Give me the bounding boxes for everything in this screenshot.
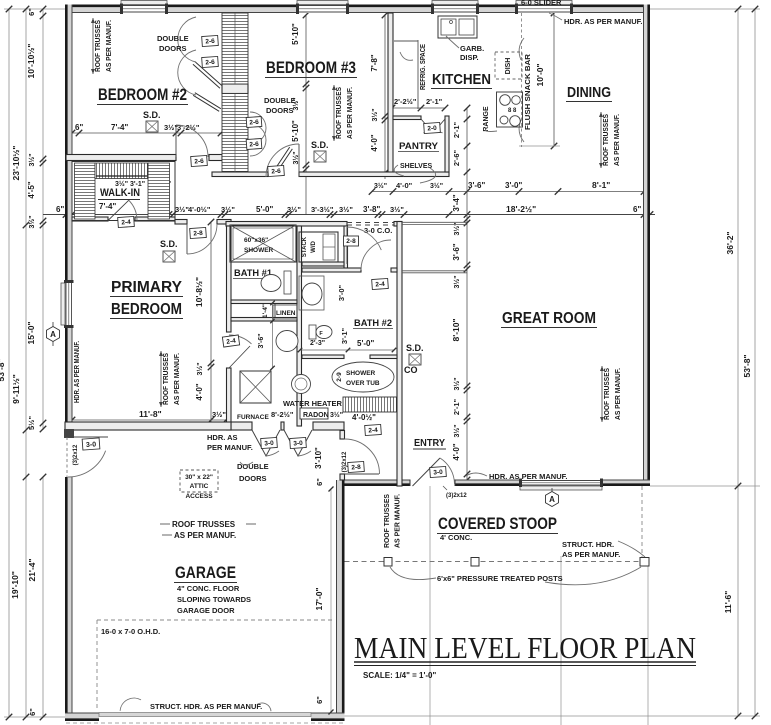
svg-text:W/D: W/D [311, 241, 317, 253]
svg-text:2-8: 2-8 [351, 464, 361, 472]
svg-text:5'-0": 5'-0" [256, 205, 273, 214]
svg-text:3½": 3½" [28, 153, 36, 166]
svg-text:3-0: 3-0 [264, 440, 274, 448]
svg-text:AS PER MANUF.: AS PER MANUF. [345, 87, 354, 139]
svg-text:SLOPING TOWARDS: SLOPING TOWARDS [177, 595, 251, 604]
svg-text:SHELVES: SHELVES [400, 163, 432, 170]
svg-text:AS PER MANUF.: AS PER MANUF. [612, 114, 621, 166]
svg-text:2'-6": 2'-6" [452, 149, 461, 166]
svg-text:6": 6" [28, 708, 37, 716]
svg-text:2-6: 2-6 [271, 168, 281, 176]
svg-text:GARAGE DOOR: GARAGE DOOR [177, 606, 235, 615]
svg-text:21'-4": 21'-4" [27, 558, 37, 581]
svg-text:AS PER MANUF.: AS PER MANUF. [104, 20, 113, 72]
svg-text:RADON: RADON [303, 412, 329, 419]
svg-text:3'-1": 3'-1" [340, 327, 349, 344]
svg-text:ROOF TRUSSES: ROOF TRUSSES [602, 368, 611, 420]
svg-text:AS PER MANUF.: AS PER MANUF. [613, 368, 622, 420]
svg-text:DISH: DISH [505, 58, 512, 75]
svg-text:AS PER MANUF.: AS PER MANUF. [172, 353, 181, 405]
svg-text:ACCESS: ACCESS [185, 493, 213, 500]
svg-text:2-6: 2-6 [205, 59, 215, 67]
svg-text:3½": 3½" [453, 275, 461, 288]
svg-text:11'-6": 11'-6" [723, 591, 733, 614]
svg-text:5'-10": 5'-10" [291, 23, 300, 45]
svg-text:11'-8": 11'-8" [139, 409, 162, 419]
svg-text:15'-0": 15'-0" [26, 321, 36, 344]
svg-text:19'-10": 19'-10" [10, 571, 20, 599]
svg-text:10'-10½": 10'-10½" [26, 44, 36, 79]
svg-text:GARB.: GARB. [460, 44, 484, 53]
svg-text:36'-2": 36'-2" [725, 231, 735, 254]
svg-text:6": 6" [27, 8, 36, 16]
svg-text:4' CONC.: 4' CONC. [440, 533, 472, 542]
svg-text:ROOF TRUSSES: ROOF TRUSSES [382, 494, 391, 548]
svg-text:2-6: 2-6 [194, 158, 204, 166]
svg-text:18'-2½": 18'-2½" [506, 204, 536, 214]
svg-text:2-6: 2-6 [249, 119, 259, 127]
svg-text:3½": 3½" [221, 205, 235, 214]
svg-text:ROOF TRUSSES: ROOF TRUSSES [334, 87, 343, 139]
svg-text:4'-0½": 4'-0½" [188, 205, 211, 214]
svg-text:WATER HEATER: WATER HEATER [283, 399, 342, 408]
svg-text:2-8: 2-8 [346, 238, 356, 245]
svg-text:STRUCT. HDR.: STRUCT. HDR. [562, 540, 614, 549]
svg-text:7'-8": 7'-8" [370, 54, 379, 71]
svg-text:ATTIC: ATTIC [190, 483, 209, 490]
svg-text:S.D.: S.D. [311, 140, 329, 150]
svg-text:BEDROOM: BEDROOM [111, 301, 182, 318]
svg-text:OVER TUB: OVER TUB [346, 380, 380, 387]
svg-text:HDR. AS PER MANUF.: HDR. AS PER MANUF. [74, 341, 81, 403]
svg-text:KITCHEN: KITCHEN [432, 71, 491, 88]
svg-text:2'-3": 2'-3" [310, 340, 325, 347]
svg-text:3'-6": 3'-6" [258, 333, 265, 348]
svg-text:3½": 3½" [453, 377, 461, 390]
svg-text:6-0 SLIDER: 6-0 SLIDER [521, 0, 562, 7]
svg-text:8'-10": 8'-10" [451, 318, 461, 341]
svg-text:DISP.: DISP. [460, 53, 479, 62]
svg-text:PRIMARY: PRIMARY [111, 279, 182, 296]
svg-text:3'-8": 3'-8" [363, 205, 380, 214]
svg-text:MAIN LEVEL FLOOR PLAN: MAIN LEVEL FLOOR PLAN [354, 630, 696, 665]
svg-text:6'x6" PRESSURE TREATED POSTS: 6'x6" PRESSURE TREATED POSTS [437, 574, 563, 583]
svg-text:3-0: 3-0 [86, 441, 97, 449]
svg-text:4'-0": 4'-0" [370, 134, 379, 151]
svg-text:3½": 3½" [212, 410, 226, 419]
svg-text:STRUCT. HDR. AS PER MANUF.: STRUCT. HDR. AS PER MANUF. [150, 702, 262, 711]
svg-text:(3)2x12: (3)2x12 [446, 493, 467, 499]
svg-text:ROOF TRUSSES: ROOF TRUSSES [93, 20, 102, 72]
svg-text:FURNACE: FURNACE [237, 414, 269, 421]
svg-text:SHOWER: SHOWER [244, 247, 274, 254]
svg-text:DOORS: DOORS [159, 44, 187, 53]
svg-text:60"x36": 60"x36" [244, 237, 268, 244]
svg-text:3'-0": 3'-0" [337, 284, 346, 301]
svg-text:3½": 3½" [287, 205, 301, 214]
svg-text:PER MANUF.: PER MANUF. [207, 443, 253, 452]
svg-text:DOORS: DOORS [266, 106, 294, 115]
svg-text:17'-0": 17'-0" [314, 587, 324, 610]
svg-text:WALK-IN: WALK-IN [100, 187, 140, 199]
svg-text:2-8: 2-8 [193, 230, 203, 238]
svg-text:2-0: 2-0 [427, 125, 437, 133]
svg-text:6": 6" [315, 478, 324, 486]
svg-text:2-4: 2-4 [368, 427, 378, 435]
svg-text:30" x 22": 30" x 22" [185, 474, 213, 481]
svg-text:4'-5": 4'-5" [27, 181, 36, 198]
svg-text:COVERED STOOP: COVERED STOOP [438, 515, 557, 533]
svg-text:4'-0": 4'-0" [452, 443, 461, 460]
svg-text:A: A [549, 495, 555, 504]
svg-text:3½": 3½" [28, 215, 36, 228]
svg-text:DINING: DINING [567, 84, 611, 101]
svg-text:A: A [50, 330, 56, 339]
svg-text:3-0: 3-0 [293, 440, 303, 448]
svg-text:3½": 3½" [196, 362, 204, 375]
svg-text:2-4: 2-4 [121, 219, 131, 227]
svg-text:4'-0": 4'-0" [195, 383, 204, 400]
svg-text:3'-4": 3'-4" [452, 194, 461, 211]
svg-text:6": 6" [75, 123, 83, 132]
svg-text:S.D.: S.D. [160, 239, 178, 249]
svg-text:ROOF TRUSSES: ROOF TRUSSES [172, 520, 236, 529]
svg-text:3'-6": 3'-6" [452, 243, 461, 260]
svg-text:S.D.: S.D. [143, 110, 161, 120]
svg-text:ROOF TRUSSES: ROOF TRUSSES [161, 353, 170, 405]
svg-text:GREAT ROOM: GREAT ROOM [502, 310, 596, 327]
svg-text:3'-10": 3'-10" [314, 447, 323, 469]
svg-text:4'-0": 4'-0" [396, 181, 413, 190]
svg-text:HDR. AS PER MANUF.: HDR. AS PER MANUF. [489, 472, 567, 481]
svg-text:DOORS: DOORS [239, 474, 267, 483]
svg-text:5'-0": 5'-0" [357, 339, 374, 348]
svg-text:8'-1": 8'-1" [592, 180, 610, 190]
svg-text:6": 6" [633, 205, 641, 214]
svg-text:(3)2x12: (3)2x12 [73, 444, 79, 465]
svg-text:6": 6" [56, 205, 64, 214]
svg-text:3½": 3½" [453, 424, 461, 437]
svg-text:AS PER MANUF.: AS PER MANUF. [393, 494, 402, 548]
svg-text:2-4: 2-4 [375, 281, 385, 289]
svg-text:3'-6": 3'-6" [468, 181, 485, 190]
svg-text:3'-0": 3'-0" [505, 181, 522, 190]
svg-text:2'-1": 2'-1" [452, 398, 461, 415]
svg-text:STACK: STACK [302, 236, 308, 257]
svg-text:10'-8½": 10'-8½" [194, 277, 204, 307]
svg-text:BEDROOM #3: BEDROOM #3 [266, 58, 356, 77]
svg-text:3½": 3½" [430, 182, 443, 190]
svg-text:10'-0": 10'-0" [535, 63, 545, 86]
svg-text:SHOWER: SHOWER [346, 370, 376, 377]
svg-text:HDR. AS PER MANUF.: HDR. AS PER MANUF. [564, 17, 642, 26]
svg-text:3½": 3½" [339, 205, 353, 214]
svg-text:6": 6" [315, 696, 324, 704]
svg-text:AS PER MANUF.: AS PER MANUF. [174, 531, 236, 540]
svg-text:3½": 3½" [371, 108, 379, 121]
svg-text:1'-4": 1'-4" [262, 304, 269, 318]
svg-text:3½": 3½" [330, 411, 343, 419]
svg-text:53'-8": 53'-8" [742, 354, 752, 377]
svg-text:3-0: 3-0 [433, 469, 443, 477]
svg-text:2'-1": 2'-1" [452, 121, 461, 138]
svg-text:BATH #2: BATH #2 [354, 318, 392, 328]
svg-text:3½": 3½" [374, 182, 387, 190]
svg-text:SCALE: 1/4" = 1'-0": SCALE: 1/4" = 1'-0" [363, 671, 436, 680]
svg-text:2'-2½": 2'-2½" [394, 97, 417, 106]
svg-text:(3)2x12: (3)2x12 [342, 451, 348, 472]
svg-text:9'-11½": 9'-11½" [11, 374, 21, 404]
svg-text:23'-10½": 23'-10½" [11, 146, 21, 181]
svg-text:S.D.: S.D. [406, 343, 424, 353]
svg-text:AS PER MANUF.: AS PER MANUF. [562, 550, 620, 559]
svg-text:ENTRY: ENTRY [414, 438, 445, 449]
svg-text:CO: CO [404, 365, 418, 375]
svg-text:3'-3½": 3'-3½" [311, 205, 334, 214]
svg-text:DOUBLE: DOUBLE [157, 34, 189, 43]
svg-text:4'-0½": 4'-0½" [352, 413, 376, 422]
svg-text:HDR. AS: HDR. AS [207, 433, 238, 442]
svg-text:PANTRY: PANTRY [399, 141, 439, 152]
svg-text:16-0 x 7-0 O.H.D.: 16-0 x 7-0 O.H.D. [101, 627, 160, 636]
svg-text:4" CONC. FLOOR: 4" CONC. FLOOR [177, 584, 240, 593]
svg-text:5'-10": 5'-10" [291, 120, 300, 142]
svg-text:ROOF TRUSSES: ROOF TRUSSES [601, 114, 610, 166]
svg-text:3½": 3½" [390, 205, 404, 214]
svg-text:FLUSH SNACK BAR: FLUSH SNACK BAR [525, 54, 532, 130]
svg-text:53'-8": 53'-8" [0, 358, 6, 381]
svg-text:GARAGE: GARAGE [175, 563, 236, 582]
svg-text:7'-4": 7'-4" [99, 202, 116, 211]
svg-text:5½": 5½" [27, 416, 36, 430]
svg-text:LINEN: LINEN [276, 310, 296, 317]
svg-text:2-9: 2-9 [336, 372, 343, 382]
svg-text:2'-1": 2'-1" [426, 97, 443, 106]
svg-text:2-6: 2-6 [205, 38, 215, 46]
svg-text:8'-2½": 8'-2½" [271, 410, 294, 419]
svg-text:2-6: 2-6 [249, 141, 259, 149]
svg-text:2-4: 2-4 [226, 338, 237, 346]
svg-text:REFRIG. SPACE: REFRIG. SPACE [420, 44, 427, 90]
svg-text:8 8: 8 8 [508, 108, 517, 114]
svg-text:7'-4": 7'-4" [111, 123, 128, 132]
svg-text:DOUBLE: DOUBLE [264, 96, 296, 105]
svg-text:BEDROOM #2: BEDROOM #2 [98, 85, 187, 104]
